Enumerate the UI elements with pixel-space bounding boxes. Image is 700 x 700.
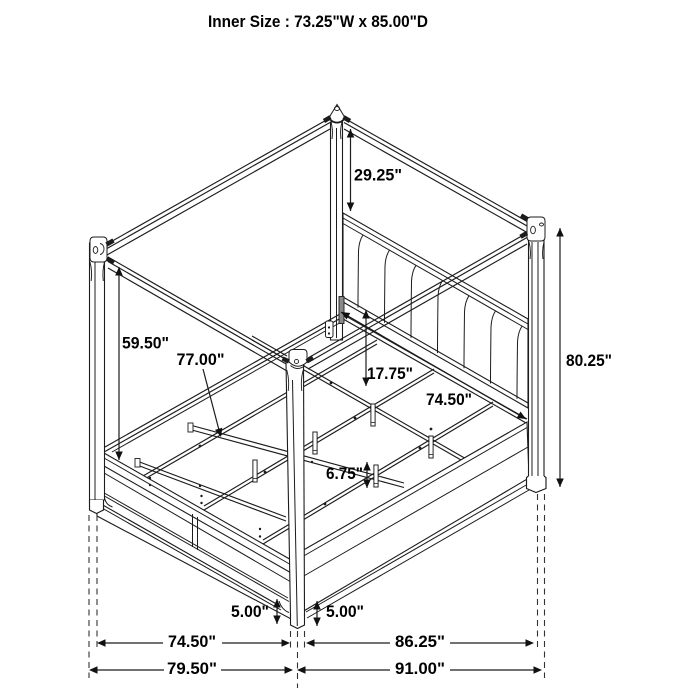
- svg-text:5.00": 5.00": [326, 603, 364, 621]
- svg-text:74.50": 74.50": [168, 633, 216, 651]
- svg-text:74.50": 74.50": [426, 391, 472, 409]
- svg-text:5.00": 5.00": [231, 603, 269, 621]
- svg-text:80.25": 80.25": [566, 352, 612, 370]
- svg-text:29.25": 29.25": [354, 167, 402, 185]
- svg-text:6.75": 6.75": [326, 465, 363, 483]
- svg-text:91.00": 91.00": [395, 660, 445, 678]
- svg-text:77.00": 77.00": [177, 351, 225, 369]
- svg-text:17.75": 17.75": [367, 365, 413, 383]
- svg-text:59.50": 59.50": [122, 335, 169, 353]
- svg-text:Inner Size : 73.25"W x 85.00"D: Inner Size : 73.25"W x 85.00"D: [208, 13, 428, 31]
- svg-text:79.50": 79.50": [167, 660, 217, 678]
- svg-text:86.25": 86.25": [395, 633, 445, 651]
